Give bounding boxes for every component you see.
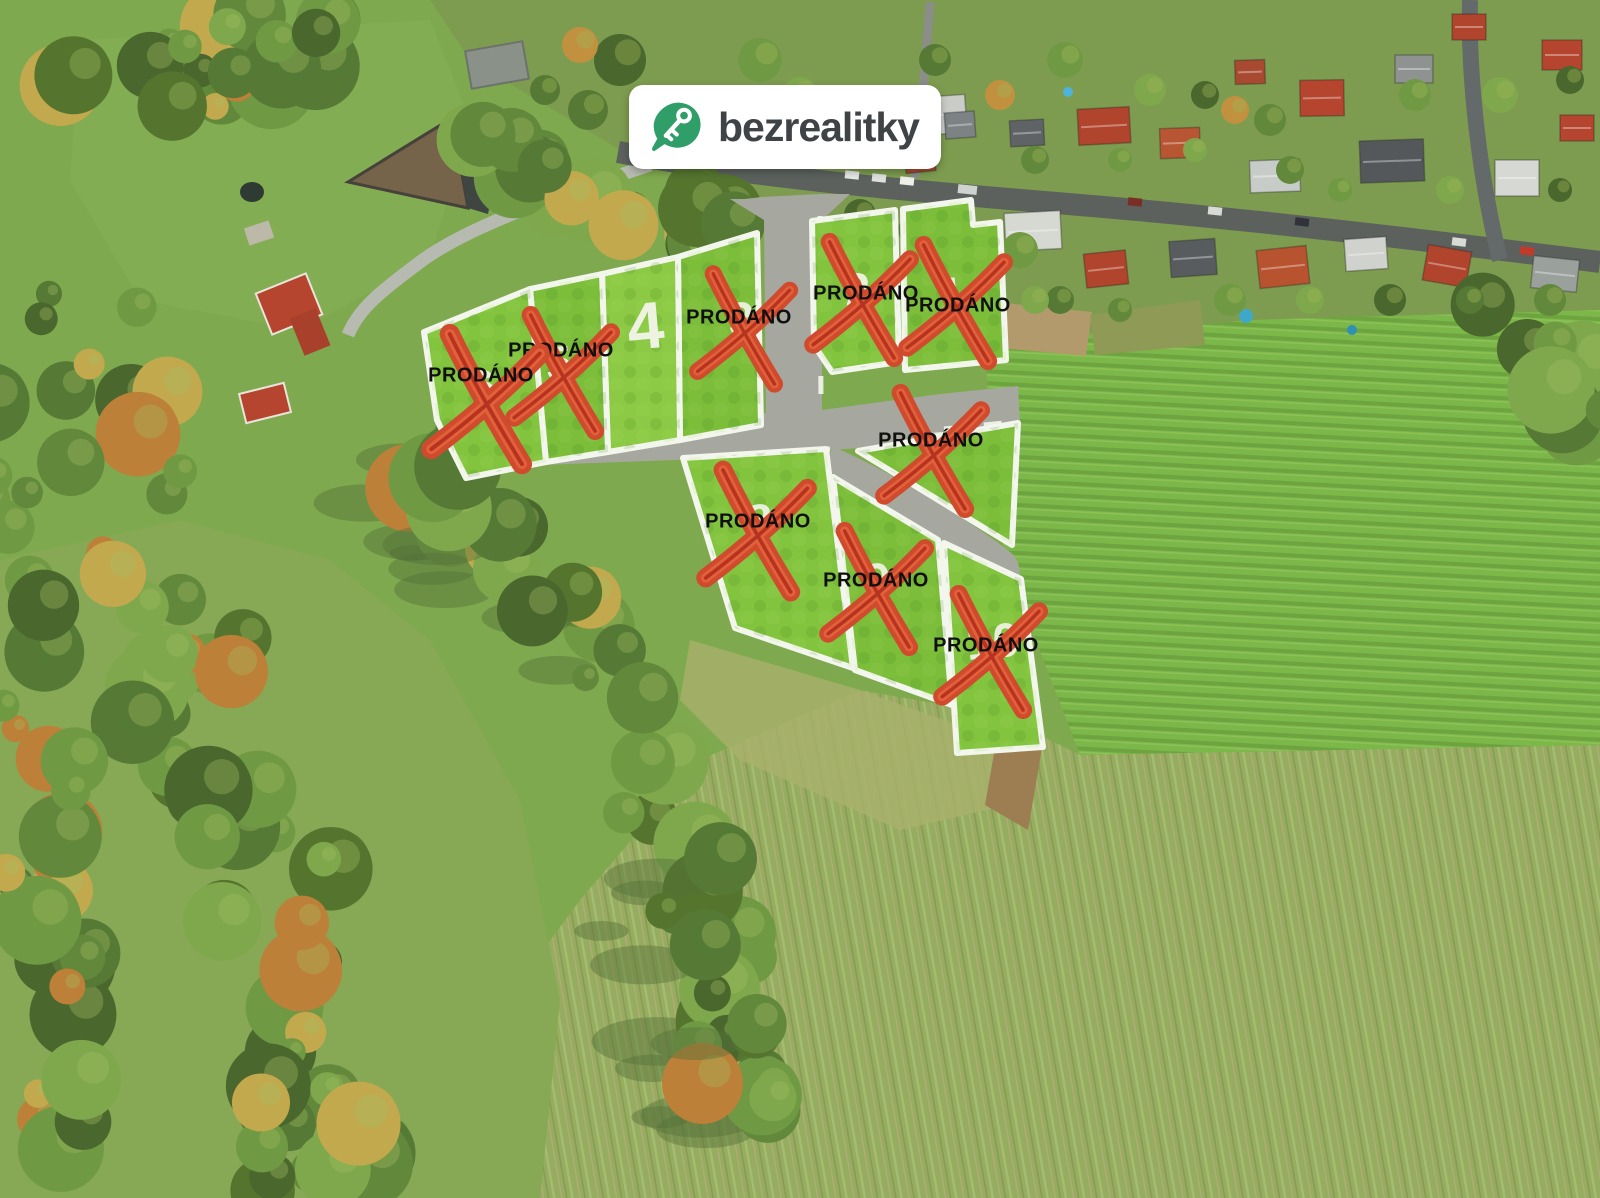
sold-label: PRODÁNO [905, 293, 1011, 316]
brand-badge: bezrealitky [629, 85, 941, 169]
brand-name: bezrealitky [718, 104, 919, 151]
plot-number: 4 [624, 287, 667, 364]
sold-label: PRODÁNO [933, 633, 1039, 656]
scene-svg: 1PRODÁNO2PRODÁNO3PRODÁNO45PRODÁNO6PRODÁN… [0, 0, 1600, 1198]
aerial-photo: 1PRODÁNO2PRODÁNO3PRODÁNO45PRODÁNO6PRODÁN… [0, 0, 1600, 1198]
sold-label: PRODÁNO [428, 363, 534, 386]
sold-label: PRODÁNO [823, 568, 929, 591]
sold-label: PRODÁNO [705, 509, 811, 532]
sold-label: PRODÁNO [686, 305, 792, 328]
crop-field-right [985, 310, 1600, 755]
sold-label: PRODÁNO [878, 428, 984, 451]
sold-label: PRODÁNO [813, 281, 919, 304]
map-pin-key-icon [651, 99, 705, 155]
